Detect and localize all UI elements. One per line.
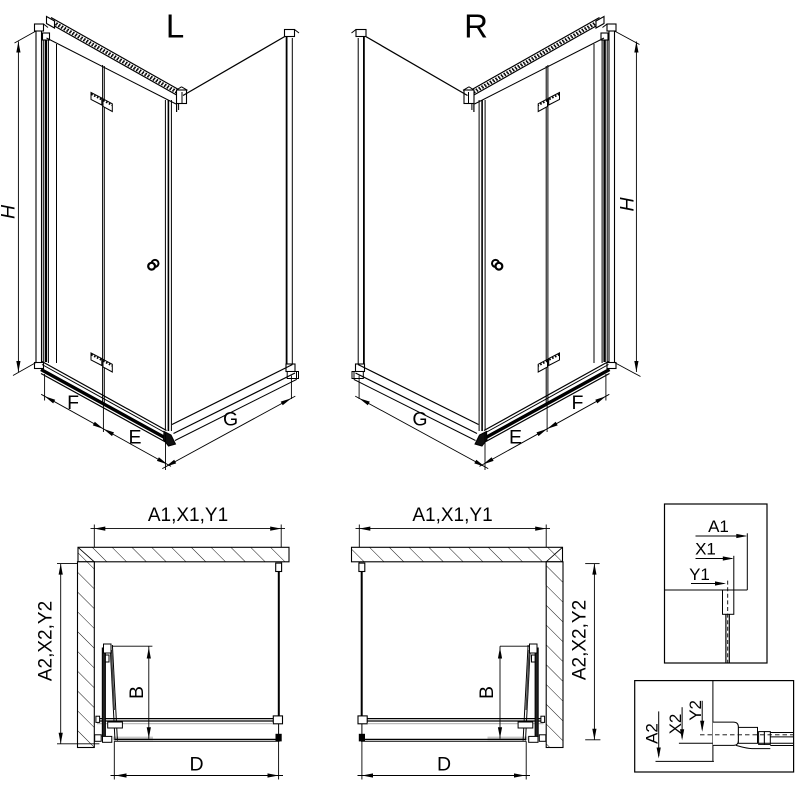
svg-text:A1,X1,Y1: A1,X1,Y1	[412, 505, 492, 526]
svg-text:A2,X2,Y2: A2,X2,Y2	[570, 600, 591, 680]
svg-text:Y2: Y2	[686, 700, 705, 721]
svg-text:G: G	[223, 409, 238, 431]
svg-text:Y1: Y1	[689, 565, 710, 584]
svg-text:D: D	[437, 754, 451, 776]
svg-text:A2,X2,Y2: A2,X2,Y2	[36, 601, 57, 681]
svg-text:F: F	[571, 392, 583, 414]
svg-text:H: H	[0, 204, 20, 219]
svg-text:X1: X1	[695, 540, 716, 559]
svg-text:B: B	[476, 686, 498, 699]
svg-text:F: F	[67, 392, 79, 414]
svg-text:E: E	[509, 427, 522, 449]
svg-text:E: E	[128, 427, 141, 449]
svg-text:A2: A2	[643, 723, 662, 744]
svg-text:A1,X1,Y1: A1,X1,Y1	[148, 505, 228, 526]
svg-text:G: G	[412, 409, 427, 431]
svg-text:R: R	[464, 8, 488, 45]
svg-text:D: D	[189, 754, 203, 776]
svg-text:B: B	[126, 686, 148, 699]
svg-text:A1: A1	[708, 517, 729, 536]
svg-text:X2: X2	[666, 714, 685, 735]
svg-text:L: L	[166, 8, 184, 45]
svg-text:H: H	[617, 197, 639, 212]
